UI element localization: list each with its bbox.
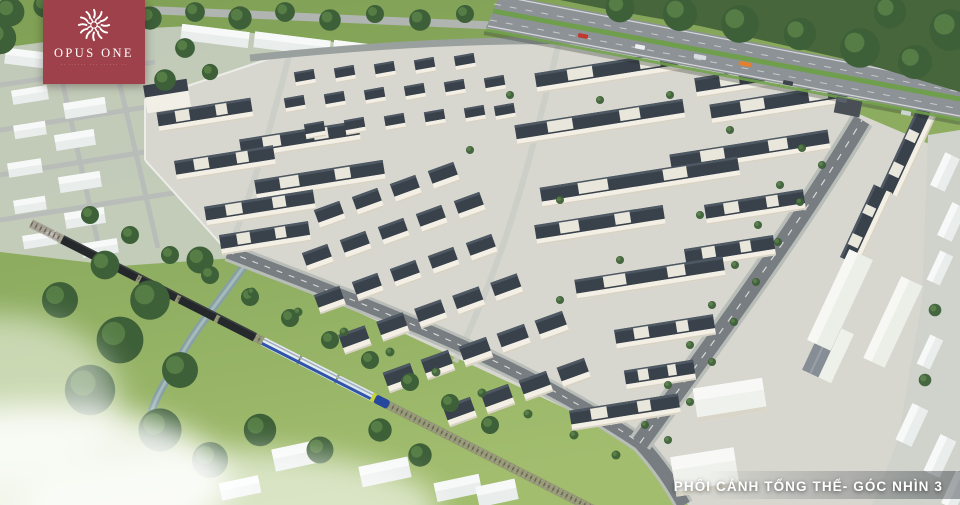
view-caption: PHỐI CẢNH TỔNG THỂ- GÓC NHÌN 3 (674, 479, 943, 494)
sunburst-icon (72, 4, 116, 46)
marketing-render-page: OPUS ONE ·· ······ ··· ······ ·· PHỐI CẢ… (0, 0, 960, 505)
logo-tagline: ·· ······ ··· ······ ·· (61, 63, 128, 67)
logo-title: OPUS ONE (54, 47, 134, 60)
opus-one-logo: OPUS ONE ·· ······ ··· ······ ·· (43, 0, 145, 84)
